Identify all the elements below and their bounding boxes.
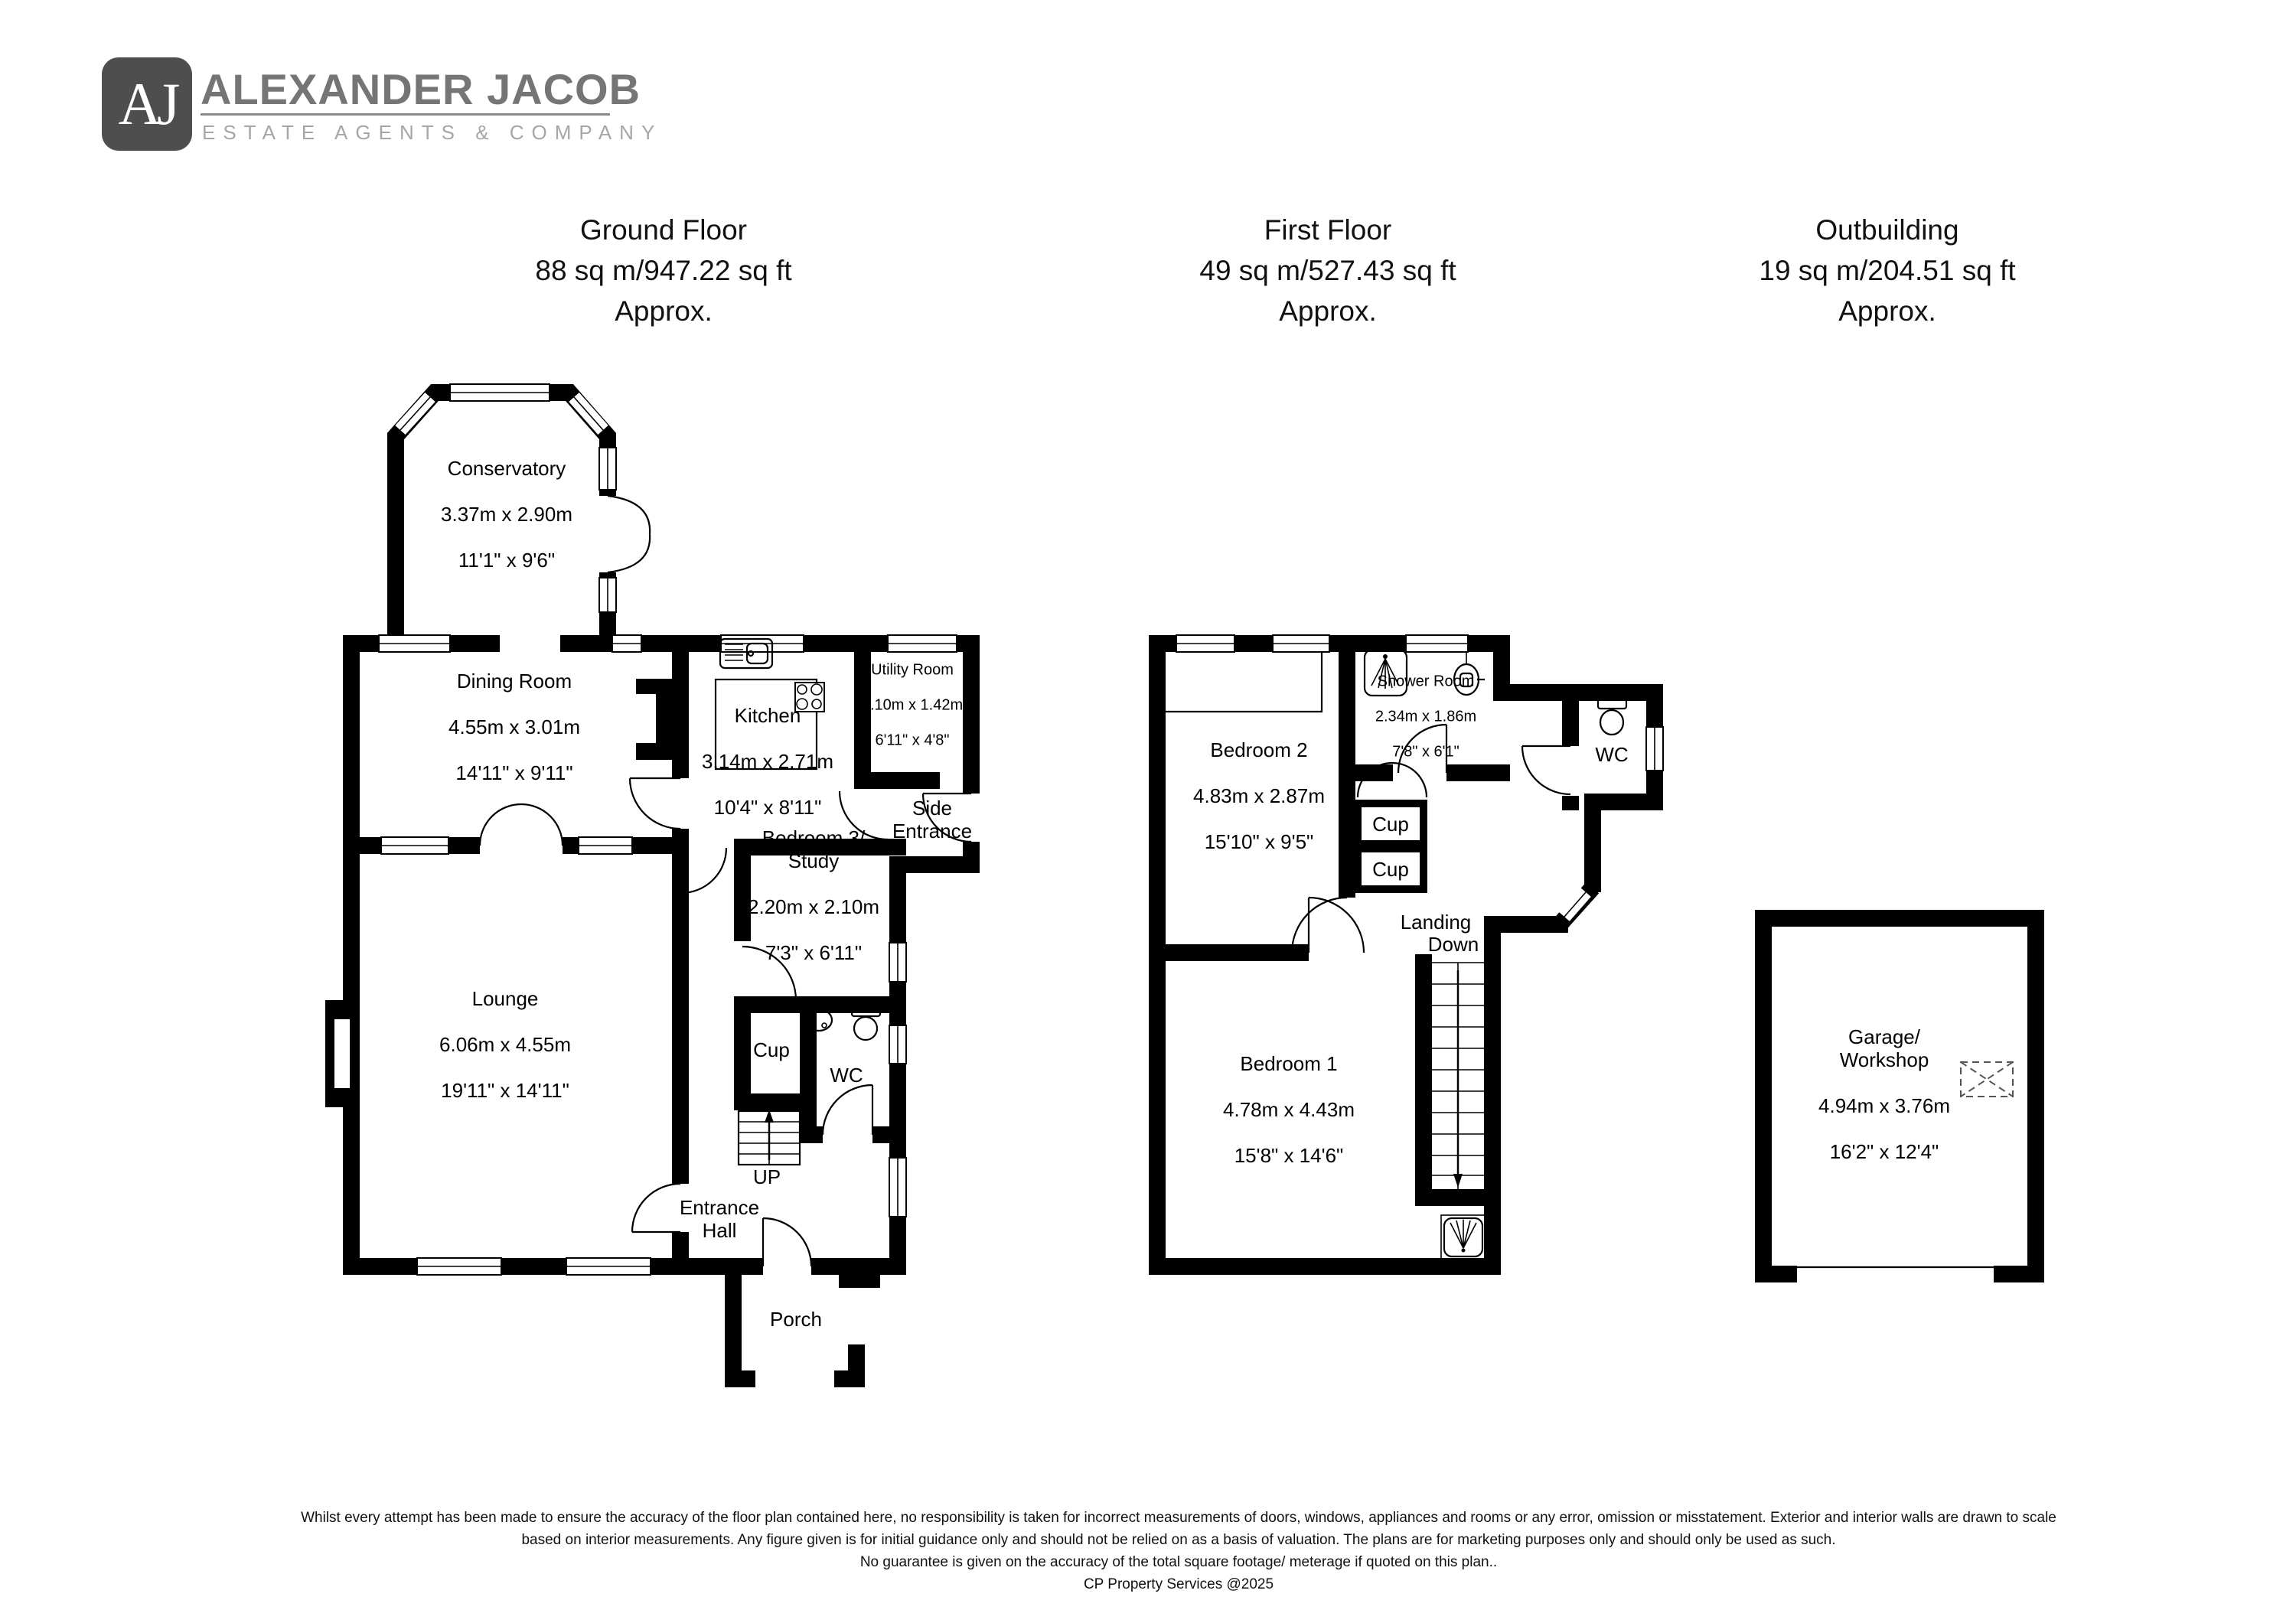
room-label-porch: Porch — [770, 1285, 822, 1354]
logo-aj-icon: AJ — [102, 57, 192, 151]
room-label-side-entrance: Side Entrance — [892, 774, 972, 865]
first-floor-title: First Floor 49 sq m/527.43 sq ft Approx. — [1199, 210, 1456, 331]
disclaimer-line-1: Whilst every attempt has been made to en… — [222, 1507, 2135, 1529]
ground-walls — [325, 393, 980, 1387]
loft-hatch-icon — [1961, 1062, 2013, 1097]
first-floor-title-text: First Floor — [1199, 210, 1456, 250]
wc-first-door — [1522, 746, 1570, 794]
disclaimer-line-3: No guarantee is given on the accuracy of… — [222, 1551, 2135, 1573]
room-label-bedroom2: Bedroom 2 4.83m x 2.87m 15'10" x 9'5" — [1193, 715, 1325, 876]
logo-rule — [201, 113, 610, 116]
ground-floor-area: 88 sq m/947.22 sq ft — [535, 250, 791, 291]
bedroom1-shower-icon — [1441, 1215, 1486, 1260]
ground-floor-title-text: Ground Floor — [535, 210, 791, 250]
ground-floor-title: Ground Floor 88 sq m/947.22 sq ft Approx… — [535, 210, 791, 331]
outbuilding-approx: Approx. — [1759, 291, 2015, 331]
first-floor-area: 49 sq m/527.43 sq ft — [1199, 250, 1456, 291]
logo-initials: AJ — [119, 70, 176, 139]
outbuilding-title: Outbuilding 19 sq m/204.51 sq ft Approx. — [1759, 210, 2015, 331]
room-label-shower-room: Shower Room 2.34m x 1.86m 7'8" x 6'1" — [1375, 656, 1476, 779]
first-floor-approx: Approx. — [1199, 291, 1456, 331]
logo-name: ALEXANDER JACOB — [201, 64, 641, 114]
room-label-bedroom3: Bedroom 3/ Study 2.20m x 2.10m 7'3" x 6'… — [748, 803, 879, 987]
logo-tagline: ESTATE AGENTS & COMPANY — [202, 121, 662, 145]
room-label-utility: Utility Room 2.10m x 1.42m 6'11" x 4'8" — [862, 644, 963, 768]
disclaimer-line-4: CP Property Services @2025 — [222, 1573, 2135, 1595]
room-label-cup-ground: Cup — [753, 1015, 790, 1084]
bedroom2-eaves-line — [1157, 652, 1322, 712]
disclaimer: Whilst every attempt has been made to en… — [222, 1507, 2135, 1595]
room-label-conservatory: Conservatory 3.37m x 2.90m 11'1" x 9'6" — [441, 434, 572, 595]
room-label-bedroom1: Bedroom 1 4.78m x 4.43m 15'8" x 14'6" — [1223, 1029, 1355, 1190]
label-stairs-down: Down — [1428, 910, 1479, 979]
room-label-entrance-hall: Entrance Hall — [680, 1173, 759, 1265]
outbuilding-area: 19 sq m/204.51 sq ft — [1759, 250, 2015, 291]
disclaimer-line-2: based on interior measurements. Any figu… — [222, 1529, 2135, 1551]
room-label-wc-ground: WC — [830, 1041, 863, 1110]
room-label-garage: Garage/ Workshop 4.94m x 3.76m 16'2" x 1… — [1818, 1002, 1950, 1186]
room-label-dining: Dining Room 4.55m x 3.01m 14'11" x 9'11" — [448, 647, 580, 807]
outbuilding-title-text: Outbuilding — [1759, 210, 2015, 250]
room-label-lounge: Lounge 6.06m x 4.55m 19'11" x 14'11" — [439, 964, 571, 1125]
stairs-down-icon — [1432, 963, 1484, 1189]
ground-floor-approx: Approx. — [535, 291, 791, 331]
room-label-wc-first: WC — [1595, 720, 1628, 789]
ground-floor-plan — [325, 384, 980, 1387]
